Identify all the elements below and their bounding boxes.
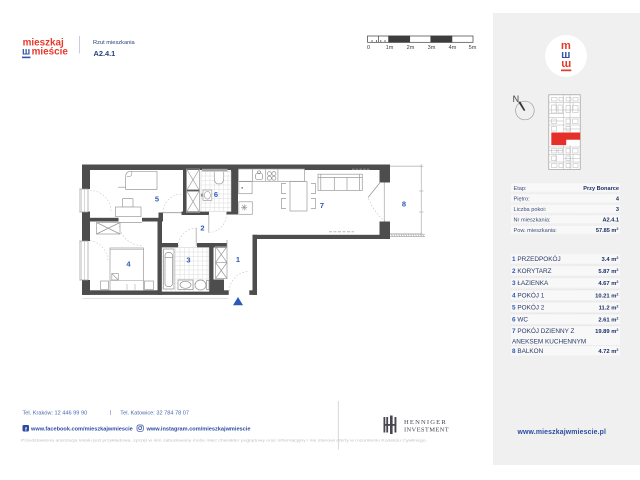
- svg-text:2m: 2m: [407, 45, 415, 51]
- svg-text:f: f: [25, 427, 27, 433]
- svg-text:57.85 m2: 57.85 m2: [596, 227, 619, 234]
- svg-text:2: 2: [200, 224, 204, 233]
- svg-text:1m: 1m: [386, 45, 394, 51]
- svg-text:8 BALKON: 8 BALKON: [512, 348, 544, 355]
- svg-text:3: 3: [616, 207, 619, 213]
- svg-text:www.facebook.com/mieszkajwmies: www.facebook.com/mieszkajwmiescie: [30, 427, 133, 433]
- svg-text:4m: 4m: [449, 45, 457, 51]
- svg-text:3: 3: [186, 256, 190, 265]
- svg-text:www.instagram.com/mieszkajwmie: www.instagram.com/mieszkajwmiescie: [146, 427, 251, 433]
- svg-text:Przedstawiona aranżacja lokalu: Przedstawiona aranżacja lokalu jest przy…: [21, 439, 427, 443]
- svg-text:5: 5: [155, 195, 159, 204]
- svg-text:1 PRZEDPOKÓJ: 1 PRZEDPOKÓJ: [512, 254, 561, 263]
- svg-text:5.87 m2: 5.87 m2: [598, 268, 618, 275]
- svg-text:4.67 m2: 4.67 m2: [598, 280, 618, 287]
- svg-text:Nr mieszkania:: Nr mieszkania:: [514, 218, 551, 224]
- svg-text:INVESTMENT: INVESTMENT: [404, 426, 449, 433]
- svg-text:6 WC: 6 WC: [512, 317, 528, 324]
- svg-text:N: N: [513, 94, 520, 104]
- svg-text:10.21 m2: 10.21 m2: [595, 293, 618, 300]
- svg-text:7: 7: [320, 201, 324, 210]
- svg-text:Etap:: Etap:: [514, 186, 528, 192]
- svg-text:A2.4.1: A2.4.1: [603, 218, 619, 224]
- svg-text:8: 8: [402, 200, 406, 209]
- svg-text:ANEKSEM KUCHENNYM: ANEKSEM KUCHENNYM: [512, 339, 586, 346]
- svg-text:6: 6: [214, 190, 218, 199]
- svg-text:Tel. Kraków: 12 446 99 90: Tel. Kraków: 12 446 99 90: [23, 411, 88, 417]
- svg-text:|: |: [110, 410, 111, 416]
- svg-text:www.mieszkajwmiescie.pl: www.mieszkajwmiescie.pl: [517, 429, 607, 436]
- svg-text:0: 0: [367, 45, 370, 51]
- svg-text:Liczba pokoi:: Liczba pokoi:: [514, 207, 547, 213]
- svg-text:2.61 m2: 2.61 m2: [598, 317, 618, 324]
- svg-text:4 POKÓJ 1: 4 POKÓJ 1: [512, 291, 545, 300]
- svg-text:mieście: mieście: [32, 46, 69, 57]
- svg-text:m: m: [561, 58, 571, 70]
- svg-text:19.89 m2: 19.89 m2: [595, 328, 618, 335]
- svg-text:3 ŁAZIENKA: 3 ŁAZIENKA: [512, 280, 549, 287]
- svg-text:Tel. Katowice: 32 784 78 07: Tel. Katowice: 32 784 78 07: [120, 411, 189, 417]
- svg-text:2 KORYTARZ: 2 KORYTARZ: [512, 268, 552, 275]
- svg-text:3m: 3m: [428, 45, 436, 51]
- svg-text:Pow. mieszkania:: Pow. mieszkania:: [514, 228, 558, 234]
- svg-text:5m: 5m: [469, 45, 477, 51]
- svg-text:4.72 m2: 4.72 m2: [598, 348, 618, 355]
- svg-text:HENNIGER: HENNIGER: [404, 419, 447, 426]
- svg-text:ш: ш: [22, 46, 30, 57]
- svg-text:Rzut mieszkania: Rzut mieszkania: [93, 40, 136, 46]
- svg-text:5 POKÓJ 2: 5 POKÓJ 2: [512, 303, 545, 312]
- svg-text:A2.4.1: A2.4.1: [94, 49, 116, 58]
- svg-text:11.2 m2: 11.2 m2: [599, 305, 619, 312]
- svg-text:7 POKÓJ DZIENNY Z: 7 POKÓJ DZIENNY Z: [512, 326, 574, 335]
- svg-text:1: 1: [236, 255, 240, 264]
- svg-text:3.4 m2: 3.4 m2: [602, 256, 619, 263]
- svg-text:Piętro:: Piętro:: [514, 197, 531, 203]
- svg-text:Przy Bonarce: Przy Bonarce: [583, 186, 619, 192]
